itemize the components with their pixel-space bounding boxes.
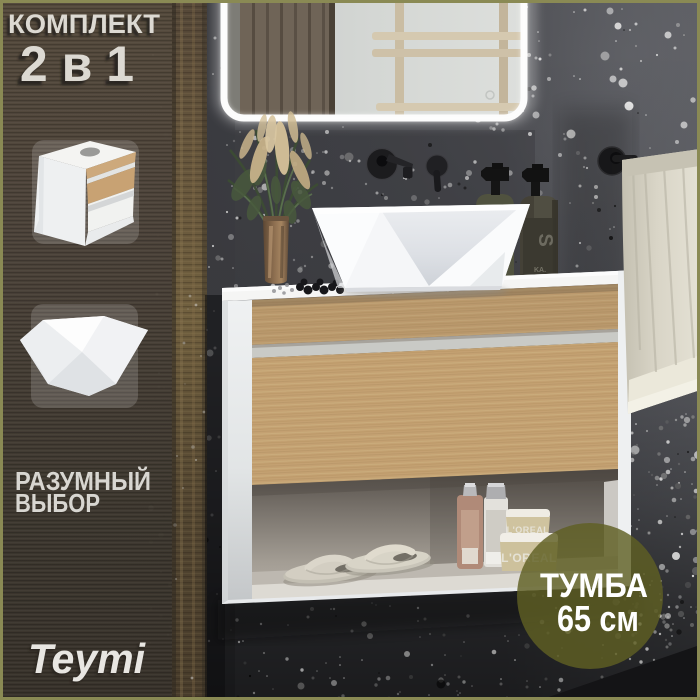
svg-text:KA.: KA. [534,267,546,274]
svg-text:2 в 1: 2 в 1 [20,36,134,92]
svg-text:S: S [534,233,556,246]
svg-text:Teymi: Teymi [28,635,146,682]
svg-text:КОМПЛЕКТ: КОМПЛЕКТ [8,9,161,39]
svg-text:ВЫБОР: ВЫБОР [15,488,100,518]
svg-text:65 см: 65 см [557,598,639,639]
